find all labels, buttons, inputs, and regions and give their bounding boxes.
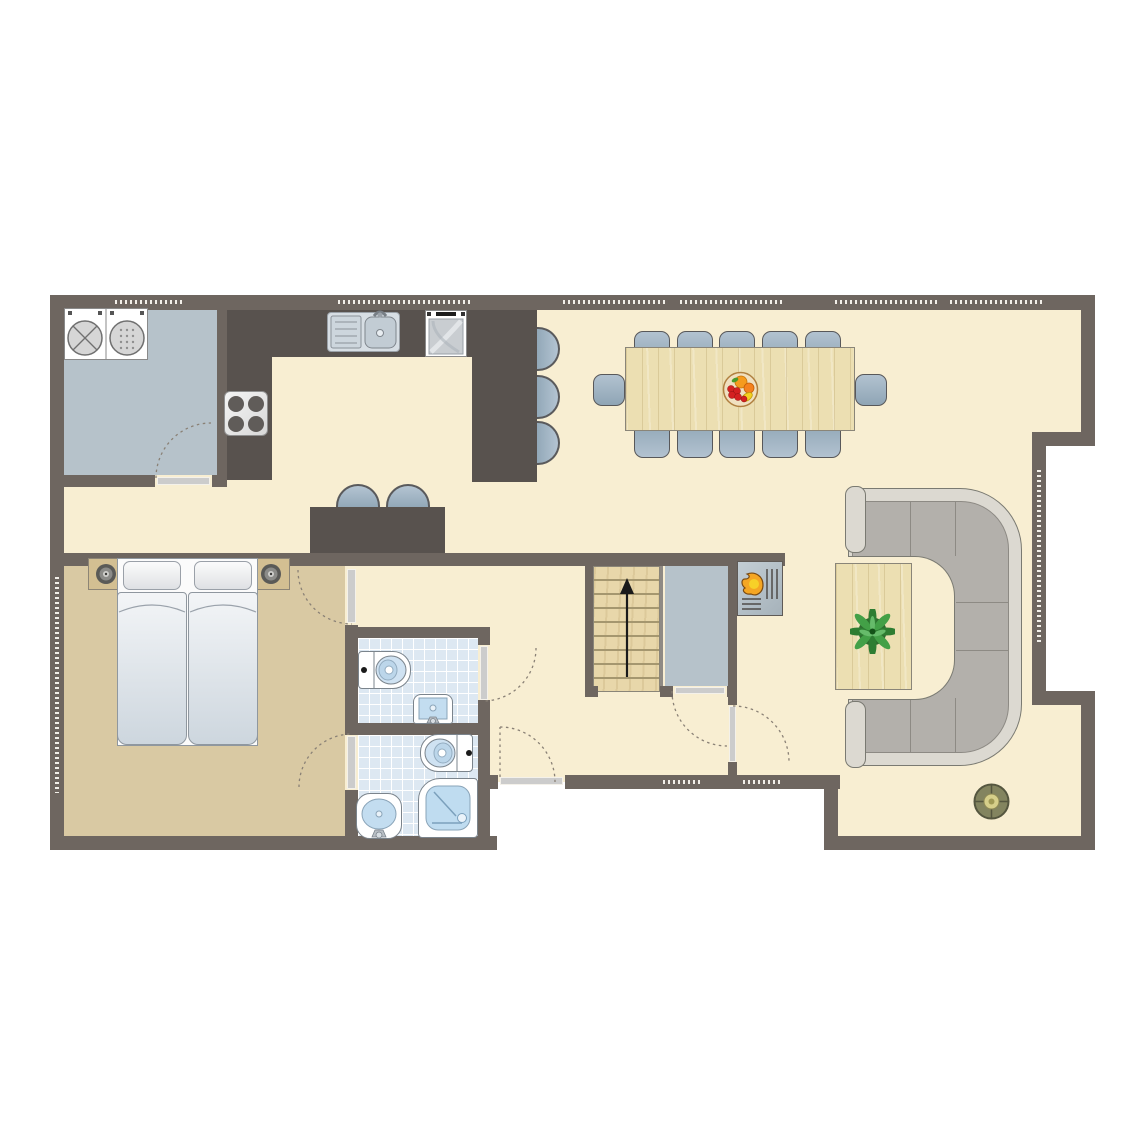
floor-plan	[0, 0, 1145, 1145]
door-swing-arcs	[0, 0, 1145, 1145]
